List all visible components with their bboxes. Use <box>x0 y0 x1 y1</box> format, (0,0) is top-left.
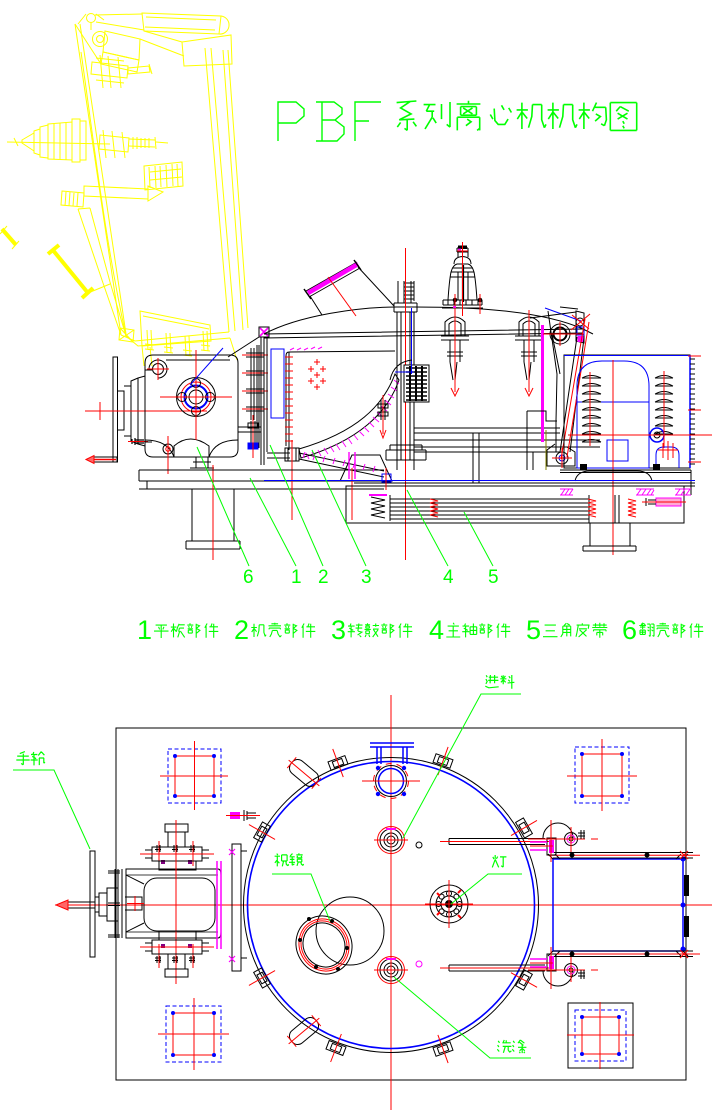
svg-text:1: 1 <box>291 567 302 588</box>
svg-text:3: 3 <box>361 567 372 588</box>
svg-text:3: 3 <box>331 615 346 645</box>
svg-text:2: 2 <box>234 615 249 645</box>
svg-text:4: 4 <box>443 567 454 588</box>
svg-text:5: 5 <box>488 567 499 588</box>
svg-text:1: 1 <box>137 615 152 645</box>
svg-text:6: 6 <box>622 615 637 645</box>
svg-text:4: 4 <box>429 615 444 645</box>
svg-text:6: 6 <box>243 567 254 588</box>
svg-text:2: 2 <box>318 567 329 588</box>
svg-text:5: 5 <box>526 615 541 645</box>
